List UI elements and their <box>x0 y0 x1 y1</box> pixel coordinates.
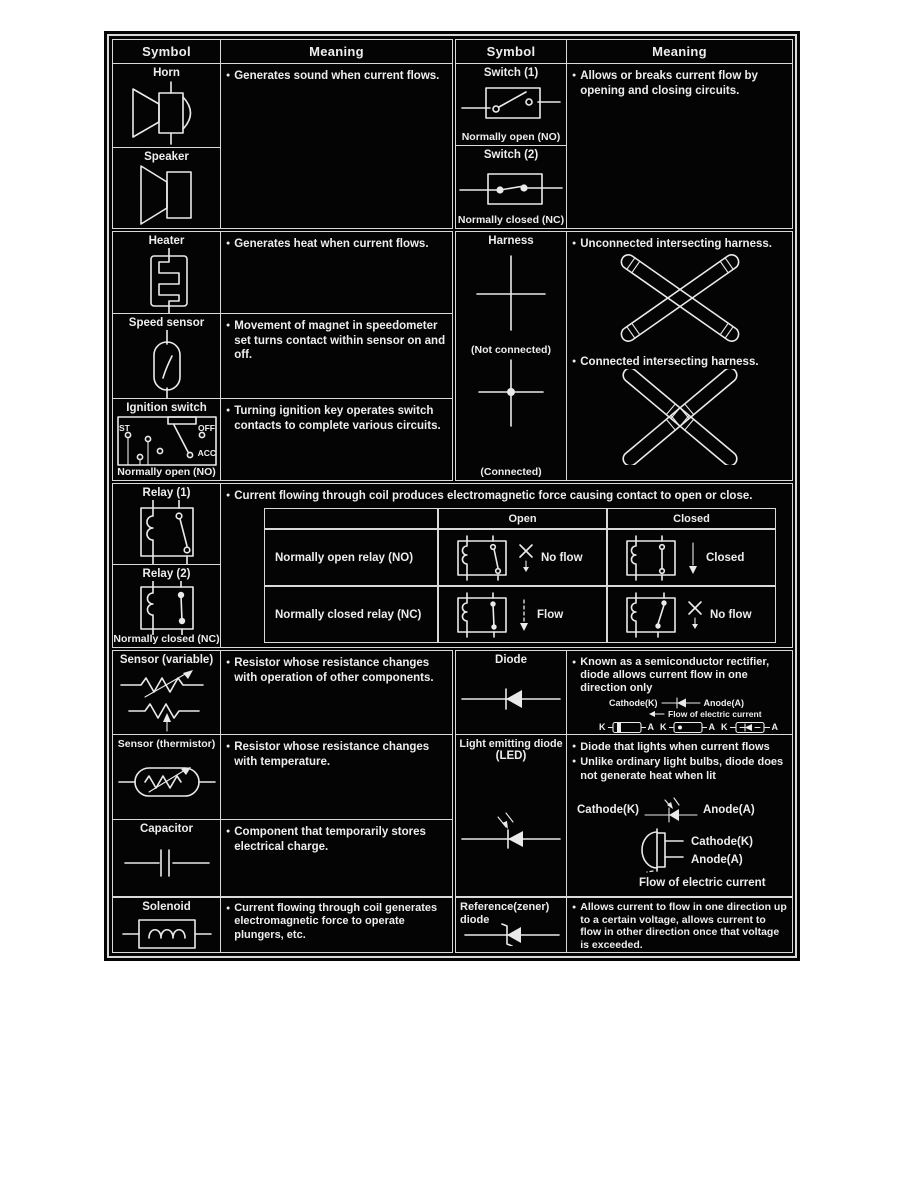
sensor-thermistor-meaning: Resistor whose resistance changes with t… <box>234 740 449 769</box>
harness-symbol-cell: Harness (Not connected) (Connected) <box>455 231 567 481</box>
manual-page: { "ui": {"bullet": "●"}, "header": {"sym… <box>0 0 918 1188</box>
solenoid-symbol-cell: Solenoid <box>112 897 221 953</box>
bullet-icon: ● <box>572 901 576 915</box>
package-a-label: A <box>709 722 716 732</box>
diode-symbol-cell: Diode <box>455 650 567 735</box>
heater-symbol-cell: Heater <box>112 231 221 314</box>
capacitor-symbol-cell: Capacitor <box>112 819 221 897</box>
harness-not-connected-caption: (Not connected) <box>456 344 566 356</box>
speaker-symbol-cell: Speaker <box>112 147 221 229</box>
led-bulb-drawing <box>623 827 685 873</box>
ignition-meaning: Turning ignition key operates switch con… <box>234 404 449 433</box>
heater-meaning: Generates heat when current flows. <box>234 237 428 252</box>
flow-arrow-icon <box>518 598 530 632</box>
sensor-thermistor-symbol-cell: Sensor (thermistor) <box>112 734 221 820</box>
diode-package-dot-icon <box>669 721 707 734</box>
zener-meaning-cell: ●Allows current to flow in one direction… <box>566 897 793 953</box>
harness-meaning-cell: ●Unconnected intersecting harness. ●Conn… <box>566 231 793 481</box>
relay-table-open-header: Open <box>438 508 607 529</box>
relay-nc-closed-cell: No flow <box>607 586 776 643</box>
led-title: Light emitting diode <box>456 735 566 750</box>
horn-meaning-cell: ●Generates sound when current flows. <box>220 63 453 229</box>
relay-no-closed-cell: Closed <box>607 529 776 586</box>
relay2-caption: Normally closed (NC) <box>113 633 220 645</box>
bullet-icon: ● <box>226 237 230 251</box>
led-meaning-1: Diode that lights when current flows <box>580 740 769 754</box>
horn-meaning: Generates sound when current flows. <box>234 69 439 84</box>
switch-open-icon <box>456 80 566 124</box>
led-cathode-label: Cathode(K) <box>577 804 639 816</box>
led-bulb-anode-label: Anode(A) <box>691 854 753 866</box>
speed-sensor-meaning: Movement of magnet in speedometer set tu… <box>234 319 449 363</box>
solenoid-icon <box>117 916 217 952</box>
heater-title: Heater <box>113 232 220 248</box>
thermistor-icon <box>115 758 219 806</box>
bullet-icon: ● <box>572 355 576 369</box>
relay-no-open-icon <box>453 534 511 582</box>
relay1-title: Relay (1) <box>113 484 220 500</box>
ignition-caption: Normally open (NO) <box>113 466 220 478</box>
package-k-label: K <box>660 722 667 732</box>
speed-sensor-icon <box>119 330 215 399</box>
relay2-symbol-cell: Relay (2) Normally closed (NC) <box>112 564 221 648</box>
switch2-title: Switch (2) <box>456 146 566 162</box>
switch2-caption: Normally closed (NC) <box>456 214 566 226</box>
diode-anode-label: Anode(A) <box>704 698 745 708</box>
relay-nc-closed-icon <box>453 591 511 639</box>
led-icon <box>456 811 566 851</box>
bullet-icon: ● <box>226 825 230 839</box>
solenoid-meaning: Current flowing through coil generates e… <box>234 902 449 942</box>
symbol-legend-table: Symbol Meaning Symbol Meaning Horn Speak… <box>104 31 800 961</box>
horn-symbol-cell: Horn <box>112 63 221 148</box>
package-a-label: A <box>772 722 779 732</box>
package-k-label: K <box>599 722 606 732</box>
connected-harness-meaning: Connected intersecting harness. <box>580 355 758 370</box>
harness-not-connected-icon <box>461 254 561 332</box>
bullet-icon: ● <box>226 69 230 83</box>
relay2-title: Relay (2) <box>113 565 220 581</box>
relay-no-open-state: No flow <box>541 552 583 564</box>
variable-resistor-icon <box>115 667 219 733</box>
sensor-thermistor-title: Sensor (thermistor) <box>113 735 220 750</box>
ignition-title: Ignition switch <box>113 399 220 415</box>
diode-cathode-label: Cathode(K) <box>609 698 658 708</box>
bullet-icon: ● <box>226 489 230 503</box>
no-flow-x-icon <box>518 543 534 573</box>
led-title-2: (LED) <box>456 750 566 763</box>
capacitor-meaning-cell: ●Component that temporarily stores elect… <box>220 819 453 897</box>
relay-nc-open-cell: Flow <box>438 586 607 643</box>
bullet-icon: ● <box>572 656 576 670</box>
led-anode-label: Anode(A) <box>703 804 755 816</box>
heater-meaning-cell: ●Generates heat when current flows. <box>220 231 453 314</box>
bullet-icon: ● <box>572 755 576 769</box>
ignition-acc-label: ACC <box>198 448 216 458</box>
package-a-label: A <box>648 722 655 732</box>
harness-connected-caption: (Connected) <box>456 466 566 478</box>
sensor-variable-meaning-cell: ●Resistor whose resistance changes with … <box>220 650 453 735</box>
package-k-label: K <box>721 722 728 732</box>
relay-meaning-cell: ●Current flowing through coil produces e… <box>220 483 793 648</box>
solenoid-meaning-cell: ●Current flowing through coil generates … <box>220 897 453 953</box>
led-meaning-2: Unlike ordinary light bulbs, diode does … <box>580 755 789 783</box>
speed-sensor-meaning-cell: ●Movement of magnet in speedometer set t… <box>220 313 453 399</box>
relay-table-corner <box>264 508 438 529</box>
bullet-icon: ● <box>572 740 576 754</box>
relay-table-closed-header: Closed <box>607 508 776 529</box>
capacitor-icon <box>117 846 217 880</box>
connected-harness-drawing <box>580 369 780 465</box>
led-bulb-cathode-label: Cathode(K) <box>691 836 753 848</box>
relay-open-icon <box>117 500 217 564</box>
switch1-symbol-cell: Switch (1) Normally open (NO) <box>455 63 567 146</box>
solenoid-title: Solenoid <box>113 898 220 914</box>
ignition-meaning-cell: ●Turning ignition key operates switch co… <box>220 398 453 481</box>
zener-diode-icon <box>459 922 563 946</box>
diode-package-band-icon <box>608 721 646 734</box>
zener-meaning: Allows current to flow in one direction … <box>580 901 789 951</box>
led-meaning-cell: ●Diode that lights when current flows ●U… <box>566 734 793 897</box>
relay-closed-icon <box>117 581 217 635</box>
diode-package-symbol-icon <box>730 721 770 734</box>
diode-meaning-cell: ●Known as a semiconductor rectifier, dio… <box>566 650 793 735</box>
diode-mini-icon <box>660 697 702 709</box>
led-mini-icon <box>643 797 699 823</box>
sensor-variable-title: Sensor (variable) <box>113 651 220 667</box>
relay-nc-open-state: Flow <box>537 609 563 621</box>
diode-icon <box>456 685 566 713</box>
ignition-symbol-cell: Ignition switch ST OFF ACC Normally open… <box>112 398 221 481</box>
relay-no-row-label: Normally open relay (NO) <box>264 529 438 586</box>
ignition-st-label: ST <box>119 423 130 433</box>
relay-nc-open-icon <box>622 591 680 639</box>
zener-symbol-cell: Reference(zener) diode <box>455 897 567 953</box>
sensor-variable-symbol-cell: Sensor (variable) <box>112 650 221 735</box>
speaker-title: Speaker <box>113 148 220 164</box>
header-meaning-right: Meaning <box>566 39 793 64</box>
capacitor-title: Capacitor <box>113 820 220 836</box>
horn-icon <box>119 80 215 146</box>
relay-meaning: Current flowing through coil produces el… <box>234 489 752 504</box>
bullet-icon: ● <box>226 404 230 418</box>
header-symbol-left: Symbol <box>112 39 221 64</box>
relay-no-open-cell: No flow <box>438 529 607 586</box>
zener-title: Reference(zener) <box>456 898 566 914</box>
horn-title: Horn <box>113 64 220 80</box>
sensor-variable-meaning: Resistor whose resistance changes with o… <box>234 656 449 685</box>
relay-no-closed-icon <box>622 534 680 582</box>
switch-meaning-cell: ●Allows or breaks current flow by openin… <box>566 63 793 229</box>
bullet-icon: ● <box>226 319 230 333</box>
speed-sensor-symbol-cell: Speed sensor <box>112 313 221 399</box>
bullet-icon: ● <box>226 902 230 916</box>
relay-nc-row-label: Normally closed relay (NC) <box>264 586 438 643</box>
switch1-caption: Normally open (NO) <box>456 131 566 143</box>
capacitor-meaning: Component that temporarily stores electr… <box>234 825 449 854</box>
header-meaning-left: Meaning <box>220 39 453 64</box>
switch-closed-icon <box>456 166 566 208</box>
switch2-symbol-cell: Switch (2) Normally closed (NC) <box>455 145 567 229</box>
diode-meaning: Known as a semiconductor rectifier, diod… <box>580 656 789 696</box>
ignition-off-label: OFF <box>198 423 215 433</box>
harness-connected-icon <box>461 358 561 428</box>
bullet-icon: ● <box>226 656 230 670</box>
heater-icon <box>119 248 215 314</box>
bullet-icon: ● <box>572 237 576 251</box>
switch-meaning: Allows or breaks current flow by opening… <box>580 69 789 98</box>
speed-sensor-title: Speed sensor <box>113 314 220 330</box>
bullet-icon: ● <box>572 69 576 83</box>
relay-no-closed-state: Closed <box>706 552 744 564</box>
led-flow-label: Flow of electric current <box>639 877 792 889</box>
diode-flow-label: Flow of electric current <box>668 709 762 719</box>
relay1-symbol-cell: Relay (1) <box>112 483 221 565</box>
bullet-icon: ● <box>226 740 230 754</box>
harness-title: Harness <box>456 232 566 248</box>
sensor-thermistor-meaning-cell: ●Resistor whose resistance changes with … <box>220 734 453 820</box>
relay-nc-closed-state: No flow <box>710 609 752 621</box>
flow-arrow-icon <box>687 541 699 575</box>
header-symbol-right: Symbol <box>455 39 567 64</box>
led-symbol-cell: Light emitting diode (LED) <box>455 734 567 897</box>
harness-unconnected-meaning: Unconnected intersecting harness. <box>580 237 772 252</box>
flow-direction-arrow-icon <box>649 710 665 718</box>
speaker-icon <box>119 164 215 226</box>
switch1-title: Switch (1) <box>456 64 566 80</box>
no-flow-x-icon <box>687 600 703 630</box>
diode-title: Diode <box>456 651 566 667</box>
relay-state-table: Open Closed Normally open relay (NO) No … <box>264 508 776 643</box>
unconnected-harness-drawing <box>580 252 780 344</box>
